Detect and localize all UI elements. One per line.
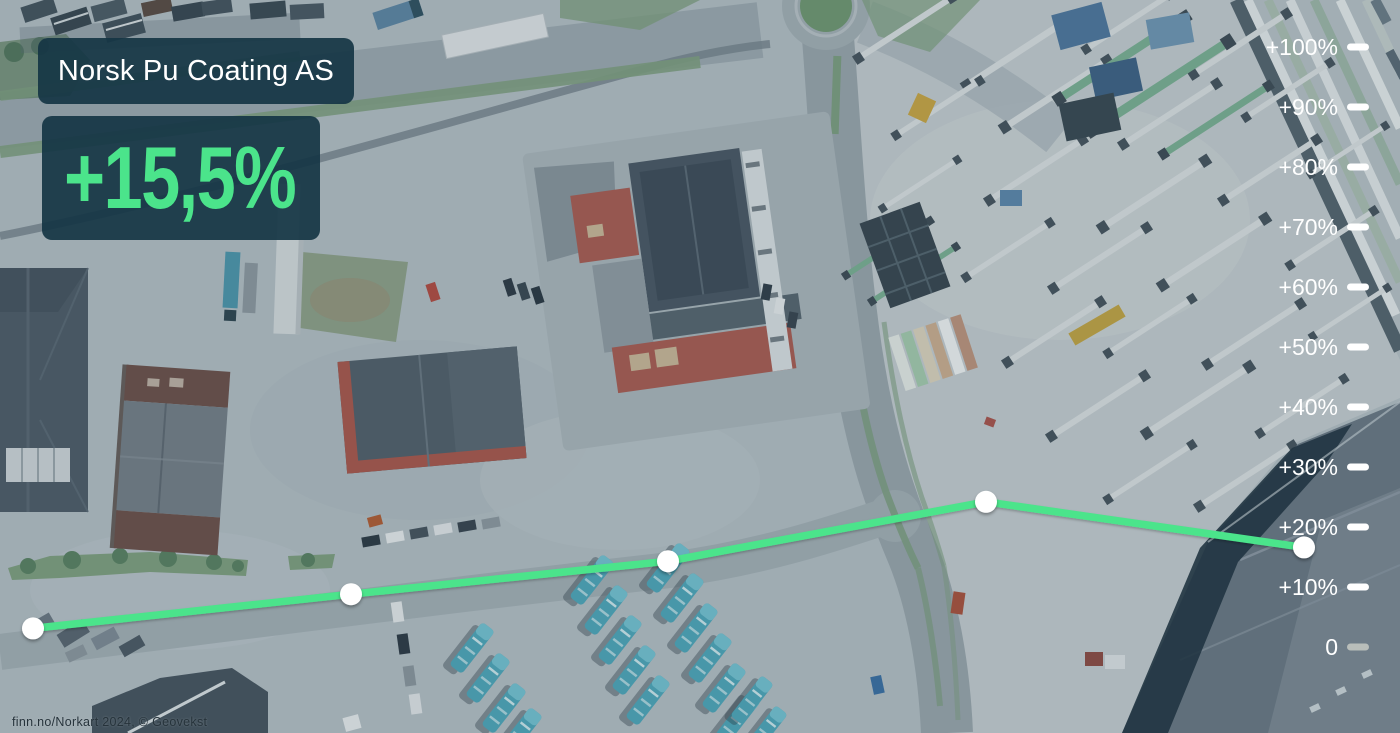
- price-change-value: +15,5%: [64, 134, 295, 222]
- map-viewport[interactable]: +100%+90%+80%+70%+60%+50%+40%+30%+20%+10…: [0, 0, 1400, 733]
- aerial-photo-background: [0, 0, 1400, 733]
- map-attribution: finn.no/Norkart 2024, © Geovekst: [12, 715, 207, 729]
- map-tint-overlay: [0, 0, 1400, 733]
- company-name: Norsk Pu Coating AS: [58, 55, 334, 88]
- price-change-badge: +15,5%: [42, 116, 320, 240]
- company-badge: Norsk Pu Coating AS: [38, 38, 354, 104]
